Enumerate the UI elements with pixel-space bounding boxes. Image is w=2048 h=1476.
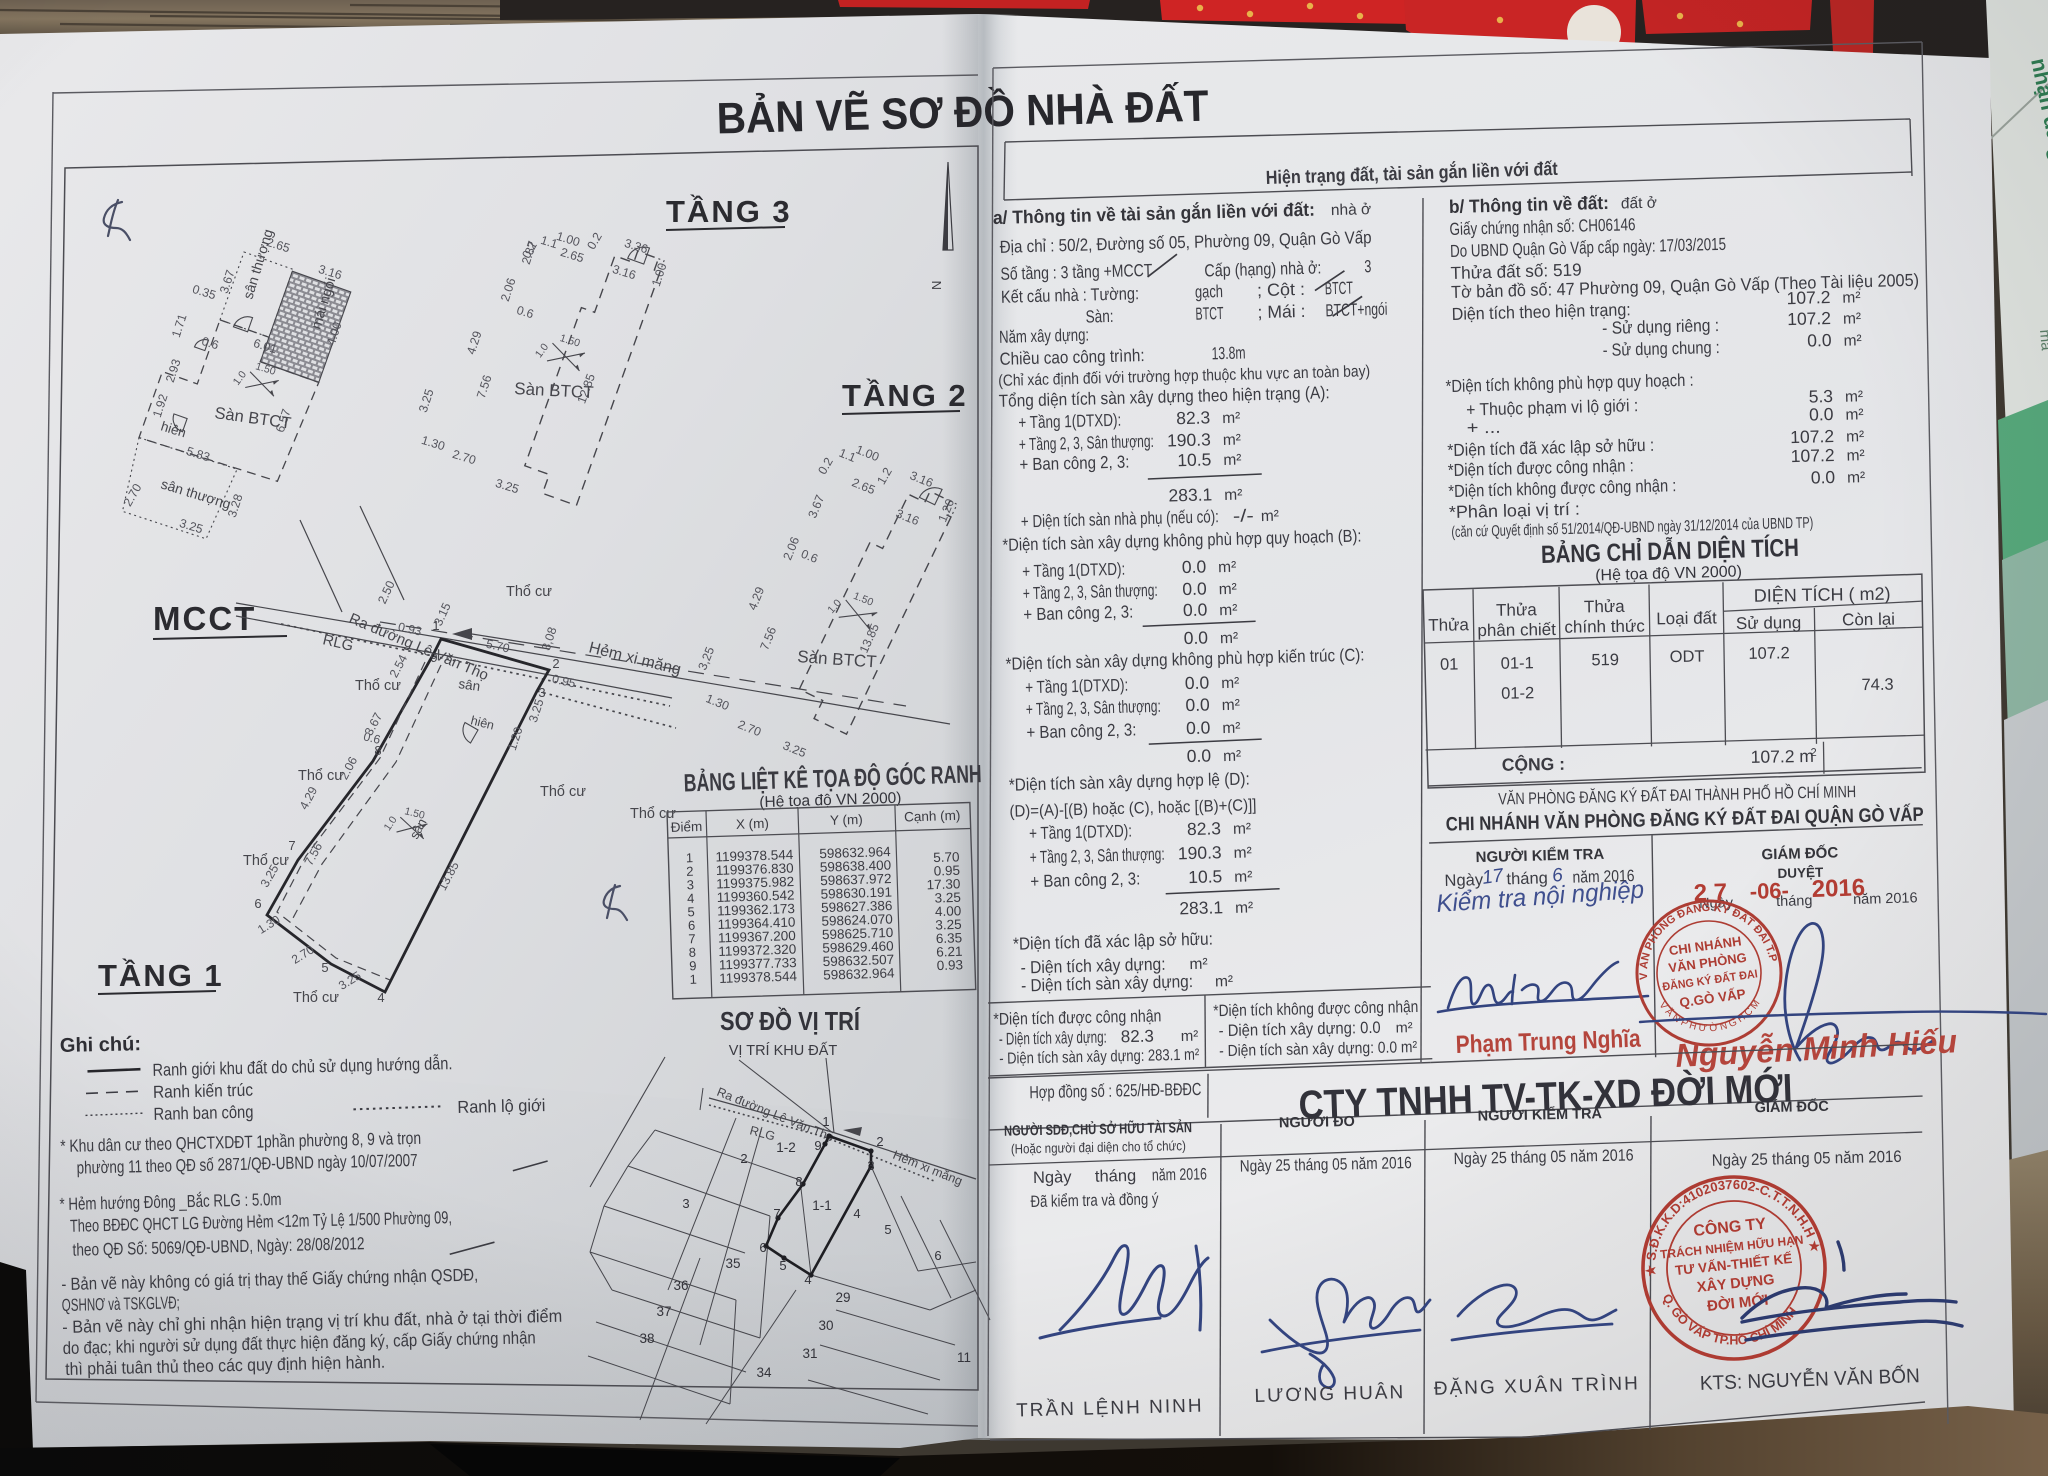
svg-text:0.0: 0.0: [1809, 404, 1834, 425]
svg-text:8: 8: [374, 743, 381, 758]
svg-text:Thổ cư: Thổ cư: [540, 784, 586, 800]
svg-text:QSHNƠ và TSKGLVĐ;: QSHNƠ và TSKGLVĐ;: [62, 1292, 180, 1315]
svg-text:2: 2: [552, 656, 559, 671]
svg-text:Năm xây dựng:: Năm xây dựng:: [999, 325, 1089, 347]
svg-text:2: 2: [740, 1151, 747, 1166]
svg-text:-06-: -06-: [1749, 878, 1789, 904]
svg-text:m²: m²: [1842, 289, 1861, 306]
svg-text:+ Tầng 2, 3, Sân thượng:: + Tầng 2, 3, Sân thượng:: [1029, 844, 1164, 868]
svg-text:5: 5: [321, 960, 328, 975]
svg-text:36: 36: [673, 1278, 688, 1293]
svg-text:đất ở: đất ở: [1621, 195, 1657, 213]
svg-text:m²: m²: [1220, 630, 1239, 647]
svg-text:m²: m²: [1219, 581, 1238, 598]
svg-text:+ Tầng 2, 3, Sân thượng:: + Tầng 2, 3, Sân thượng:: [1026, 696, 1161, 720]
svg-text:9: 9: [814, 1138, 821, 1153]
svg-text:+ Ban công 2, 3:: + Ban công 2, 3:: [1030, 868, 1140, 891]
svg-text:- Sử dụng riêng :: - Sử dụng riêng :: [1602, 315, 1719, 338]
svg-text:Hợp đồng số : 625/HĐ-BĐĐC: Hợp đồng số : 625/HĐ-BĐĐC: [1029, 1079, 1201, 1102]
svg-text:0.0: 0.0: [1185, 672, 1210, 693]
svg-text:phân chiết: phân chiết: [1477, 620, 1556, 640]
svg-text:107.2: 107.2: [1786, 287, 1830, 308]
svg-text:m²: m²: [1846, 447, 1865, 464]
svg-text:Thổ cư: Thổ cư: [298, 768, 344, 784]
svg-text:m²: m²: [1181, 1028, 1199, 1045]
svg-text:tháng: tháng: [1095, 1167, 1137, 1186]
svg-text:m²: m²: [1845, 388, 1864, 405]
svg-text:2: 2: [1811, 747, 1817, 759]
svg-text:9: 9: [430, 650, 437, 665]
svg-text:10.5: 10.5: [1177, 449, 1212, 470]
svg-text:MCCT: MCCT: [153, 600, 256, 637]
svg-text:X (m): X (m): [736, 816, 769, 832]
svg-text:+ Ban công 2, 3:: + Ban công 2, 3:: [1023, 601, 1133, 624]
svg-text:Cấp (hạng) nhà ở:: Cấp (hạng) nhà ở:: [1204, 257, 1321, 280]
svg-text:Chiều cao công trình:: Chiều cao công trình:: [999, 345, 1144, 369]
svg-text:chính thức: chính thức: [1564, 617, 1645, 637]
svg-text:0.0: 0.0: [1187, 745, 1212, 766]
svg-text:2016: 2016: [1811, 874, 1865, 903]
svg-text:NGƯỜI KIỂM TRA: NGƯỜI KIỂM TRA: [1475, 845, 1604, 866]
svg-text:SƠ ĐỒ VỊ TRÍ: SƠ ĐỒ VỊ TRÍ: [720, 1006, 861, 1036]
svg-text:107.2: 107.2: [1790, 426, 1834, 447]
svg-text:m²: m²: [1233, 820, 1252, 837]
svg-text:1199378.544: 1199378.544: [719, 968, 798, 985]
svg-text:Thổ cư: Thổ cư: [630, 806, 676, 822]
svg-text:m²: m²: [1218, 559, 1237, 576]
svg-text:m²: m²: [1222, 697, 1241, 714]
svg-text:7: 7: [288, 838, 295, 853]
svg-text:01-2: 01-2: [1501, 684, 1534, 703]
svg-text:Ranh lộ giới: Ranh lộ giới: [457, 1095, 545, 1117]
svg-text:m²: m²: [1843, 310, 1862, 327]
svg-text:0.0: 0.0: [1807, 330, 1832, 351]
svg-text:107.2: 107.2: [1791, 445, 1835, 466]
svg-text:82.3: 82.3: [1121, 1027, 1154, 1047]
svg-text:m²: m²: [1223, 452, 1242, 469]
svg-text:-/-: -/-: [1233, 505, 1255, 526]
svg-text:năm 2016: năm 2016: [1152, 1165, 1207, 1184]
svg-text:74.3: 74.3: [1861, 676, 1893, 695]
svg-text:283.1: 283.1: [1179, 897, 1223, 918]
svg-text:3: 3: [538, 685, 545, 700]
svg-text:0.0: 0.0: [1186, 717, 1211, 738]
svg-text:190.3: 190.3: [1178, 842, 1222, 863]
svg-text:Ngày 25 tháng 05 năm 2016: Ngày 25 tháng 05 năm 2016: [1240, 1154, 1412, 1176]
svg-text:29: 29: [835, 1290, 850, 1305]
svg-text:0.0: 0.0: [1185, 694, 1210, 715]
svg-text:4: 4: [377, 990, 384, 1005]
svg-text:m²: m²: [1233, 844, 1252, 861]
svg-text:Y (m): Y (m): [830, 812, 863, 828]
svg-text:30: 30: [818, 1318, 833, 1333]
svg-text:m²: m²: [1234, 868, 1253, 885]
svg-text:m²: m²: [1221, 675, 1240, 692]
svg-text:11: 11: [957, 1350, 971, 1365]
svg-text:13.8m: 13.8m: [1211, 342, 1246, 363]
svg-text:Loại đất: Loại đất: [1656, 608, 1717, 628]
svg-text:Kết cấu nhà : Tường:: Kết cấu nhà : Tường:: [1001, 283, 1139, 307]
svg-text:+ Tầng 2, 3, Sân thượng:: + Tầng 2, 3, Sân thượng:: [1019, 431, 1154, 455]
svg-text:m²: m²: [1396, 1020, 1413, 1036]
svg-text:3: 3: [682, 1196, 689, 1211]
svg-text:Còn lại: Còn lại: [1842, 610, 1895, 630]
svg-text:nhà ở: nhà ở: [1331, 201, 1372, 219]
svg-text:b/ Thông tin về đất:: b/ Thông tin về đất:: [1449, 192, 1609, 217]
svg-text:+ Ban công 2, 3:: + Ban công 2, 3:: [1019, 452, 1129, 475]
svg-text:Thửa: Thửa: [1428, 615, 1470, 635]
svg-text:m²: m²: [1846, 428, 1865, 445]
svg-text:m²: m²: [1189, 956, 1208, 973]
svg-text:35: 35: [725, 1256, 740, 1271]
svg-text:5: 5: [779, 1258, 786, 1273]
svg-text:4: 4: [853, 1206, 860, 1221]
svg-text:LƯƠNG HUÂN: LƯƠNG HUÂN: [1254, 1381, 1405, 1407]
svg-text:*Phân loại vị trí :: *Phân loại vị trí :: [1449, 499, 1580, 522]
svg-text:Điểm: Điểm: [670, 819, 702, 835]
svg-text:Thửa: Thửa: [1496, 600, 1538, 620]
svg-text:Thổ cư: Thổ cư: [506, 584, 552, 600]
svg-text:Ngày: Ngày: [1033, 1168, 1073, 1187]
svg-text:Thửa: Thửa: [1584, 597, 1626, 617]
svg-text:34: 34: [756, 1365, 772, 1380]
svg-text:+ Tầng 1(DTXD):: + Tầng 1(DTXD):: [1018, 410, 1121, 433]
svg-text:; Cột :: ; Cột :: [1257, 279, 1306, 300]
svg-text:Thổ cư: Thổ cư: [355, 678, 401, 694]
svg-text:0.0: 0.0: [1183, 628, 1208, 649]
svg-text:GIÁM ĐỐC: GIÁM ĐỐC: [1754, 1097, 1829, 1116]
svg-text:m²: m²: [1219, 602, 1238, 619]
svg-text:+ ...: + ...: [1466, 417, 1501, 438]
svg-text:Đã kiểm tra và đồng ý: Đã kiểm tra và đồng ý: [1030, 1190, 1159, 1211]
svg-text:3: 3: [867, 1158, 874, 1173]
svg-text:190.3: 190.3: [1167, 429, 1211, 450]
svg-text:TẦNG 1: TẦNG 1: [98, 958, 224, 993]
svg-text:TẦNG 3: TẦNG 3: [666, 194, 792, 229]
svg-text:Ngày 25 tháng 05 năm 2: Ngày 25 tháng 05 năm 2016: [1453, 1146, 1633, 1168]
svg-text:82.3: 82.3: [1176, 407, 1211, 428]
svg-text:0.93: 0.93: [936, 957, 963, 973]
svg-text:m²: m²: [1215, 973, 1234, 990]
svg-text:82.3: 82.3: [1187, 818, 1222, 839]
svg-text:1-2: 1-2: [776, 1140, 796, 1155]
svg-text:*Diện tích được công nhận: *Diện tích được công nhận: [993, 1006, 1161, 1029]
svg-text:1: 1: [822, 1114, 829, 1129]
svg-text:gạch: gạch: [1195, 281, 1224, 302]
svg-text:+ Tầng 1(DTXD):: + Tầng 1(DTXD):: [1022, 559, 1125, 582]
svg-text:m²: m²: [1223, 432, 1242, 449]
svg-text:5: 5: [884, 1222, 891, 1237]
svg-text:107.2 m: 107.2 m: [1751, 746, 1815, 767]
svg-text:Ghi chú:: Ghi chú:: [60, 1033, 142, 1057]
svg-text:ODT: ODT: [1670, 648, 1705, 667]
svg-text:m²: m²: [1224, 487, 1243, 504]
svg-text:GIÁM ĐỐC: GIÁM ĐỐC: [1761, 843, 1838, 863]
svg-text:m²: m²: [1222, 410, 1241, 427]
svg-text:1: 1: [432, 618, 439, 633]
svg-text:BTCT+ngói: BTCT+ngói: [1325, 299, 1388, 321]
svg-text:Thổ cư: Thổ cư: [293, 990, 339, 1006]
svg-text:31: 31: [802, 1346, 817, 1361]
svg-text:10.5: 10.5: [1188, 866, 1223, 887]
svg-text:m²: m²: [1235, 899, 1254, 916]
svg-text:0.0: 0.0: [1183, 600, 1208, 621]
svg-text:Thổ cư: Thổ cư: [243, 853, 289, 869]
svg-text:Sàn:: Sàn:: [1085, 306, 1114, 327]
svg-text:Số tầng : 3 tầng +MCCT: Số tầng : 3 tầng +MCCT: [1000, 260, 1153, 284]
svg-text:Ranh ban công: Ranh ban công: [153, 1102, 253, 1124]
svg-text:NGƯỜI ĐO: NGƯỜI ĐO: [1279, 1112, 1355, 1131]
svg-text:- Diện tích xây dựng: 0.0: - Diện tích xây dựng: 0.0: [1219, 1019, 1381, 1040]
svg-text:6: 6: [254, 896, 261, 911]
svg-text:N: N: [929, 281, 944, 290]
svg-text:3: 3: [1364, 256, 1372, 276]
svg-text:0.0: 0.0: [1811, 467, 1836, 488]
svg-text:m²: m²: [1847, 469, 1866, 486]
svg-text:Sử dụng: Sử dụng: [1736, 613, 1802, 633]
svg-text:7: 7: [773, 1206, 780, 1221]
svg-text:; Mái :: ; Mái :: [1257, 301, 1306, 322]
svg-text:Cạnh (m): Cạnh (m): [904, 808, 961, 825]
svg-text:DIỆN TÍCH ( m2): DIỆN TÍCH ( m2): [1754, 584, 1891, 606]
svg-text:m²: m²: [1223, 748, 1242, 765]
svg-text:1: 1: [689, 972, 697, 987]
svg-text:+ Ban công 2, 3:: + Ban công 2, 3:: [1026, 719, 1136, 742]
svg-text:m²: m²: [1845, 406, 1864, 423]
svg-text:37: 37: [656, 1304, 671, 1319]
svg-text:38: 38: [639, 1331, 654, 1346]
svg-text:+ Tầng 1(DTXD):: + Tầng 1(DTXD):: [1025, 675, 1128, 698]
svg-text:m²: m²: [1261, 508, 1280, 525]
svg-text:NGƯỜI KIỂM TRA: NGƯỜI KIỂM TRA: [1477, 1104, 1602, 1124]
svg-text:283.1: 283.1: [1168, 484, 1212, 505]
svg-text:0.0: 0.0: [1182, 579, 1207, 600]
svg-text:8: 8: [795, 1174, 802, 1189]
svg-text:VỊ TRÍ KHU ĐẤT: VỊ TRÍ KHU ĐẤT: [729, 1042, 838, 1059]
svg-text:01-1: 01-1: [1501, 654, 1534, 673]
svg-text:- Diện tích xây dựng:: - Diện tích xây dựng:: [999, 1028, 1107, 1049]
svg-text:2: 2: [876, 1134, 883, 1149]
svg-text:01: 01: [1440, 655, 1459, 673]
svg-text:BTCT: BTCT: [1195, 303, 1224, 324]
svg-text:107.2: 107.2: [1787, 308, 1831, 329]
svg-text:m²: m²: [1843, 332, 1862, 349]
svg-text:6: 6: [759, 1240, 766, 1255]
svg-text:Ranh kiến trúc: Ranh kiến trúc: [153, 1080, 254, 1102]
svg-text:4: 4: [804, 1272, 811, 1287]
svg-text:+ Tầng 1(DTXD):: + Tầng 1(DTXD):: [1029, 821, 1132, 844]
svg-text:TẦNG 2: TẦNG 2: [842, 378, 968, 413]
svg-text:6: 6: [934, 1248, 941, 1263]
svg-text:598632.964: 598632.964: [823, 965, 895, 982]
svg-text:CỘNG :: CỘNG :: [1502, 753, 1566, 775]
svg-text:107.2: 107.2: [1748, 644, 1790, 663]
svg-text:1-1: 1-1: [812, 1198, 832, 1213]
svg-text:0.0: 0.0: [1182, 557, 1207, 578]
svg-text:+ Tầng 2, 3, Sân thượng:: + Tầng 2, 3, Sân thượng:: [1023, 580, 1158, 604]
svg-text:- Sử dụng chung :: - Sử dụng chung :: [1602, 337, 1719, 360]
svg-text:519: 519: [1591, 651, 1619, 669]
svg-text:m²: m²: [1222, 720, 1241, 737]
svg-text:sân: sân: [458, 676, 482, 694]
